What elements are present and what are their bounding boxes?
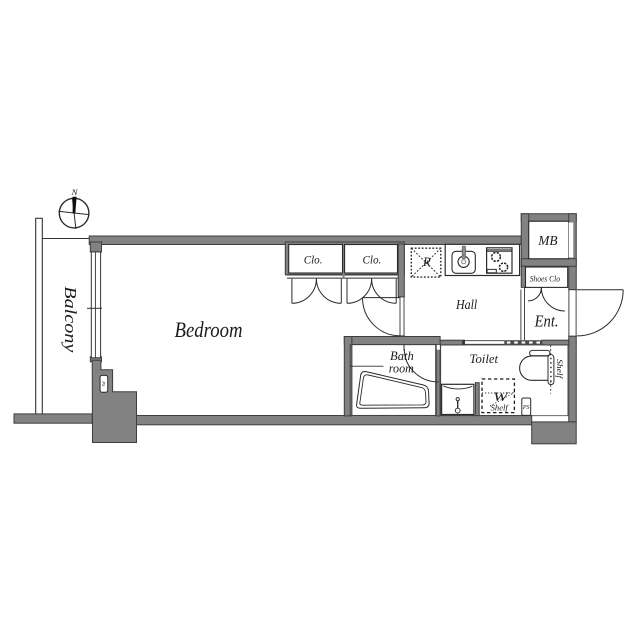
svg-text:Ent.: Ent. [534,312,559,331]
svg-text:room: room [389,362,414,376]
svg-text:PS: PS [522,405,530,411]
svg-text:PS: PS [101,380,106,387]
svg-text:Toilet: Toilet [470,351,499,366]
svg-text:MB: MB [537,233,557,248]
svg-text:R: R [422,255,431,269]
svg-text:Clo.: Clo. [304,253,323,267]
svg-text:W: W [493,390,510,404]
svg-text:Hall: Hall [455,297,477,312]
svg-text:Clo.: Clo. [363,253,382,267]
svg-text:Bedroom: Bedroom [175,317,243,342]
svg-text:Shoes Clo: Shoes Clo [530,275,560,284]
svg-text:N: N [71,187,79,197]
svg-text:Balcony: Balcony [61,286,80,353]
svg-text:Shelf: Shelf [555,359,564,380]
svg-text:Shelf: Shelf [491,404,510,413]
